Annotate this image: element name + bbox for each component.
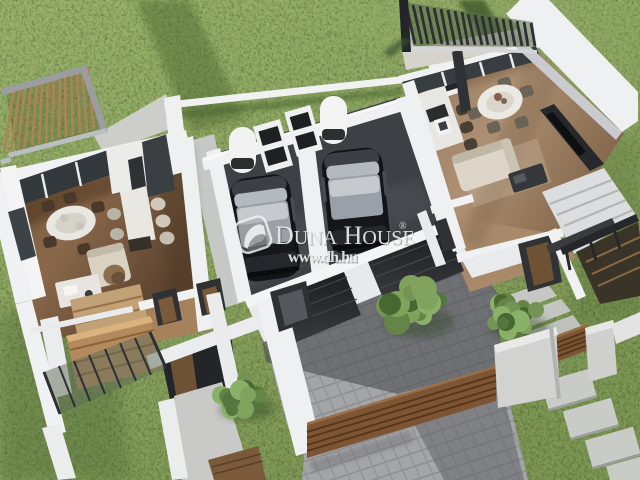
svg-text:www.dh.hu: www.dh.hu (288, 249, 358, 266)
svg-text:®: ® (399, 221, 407, 232)
